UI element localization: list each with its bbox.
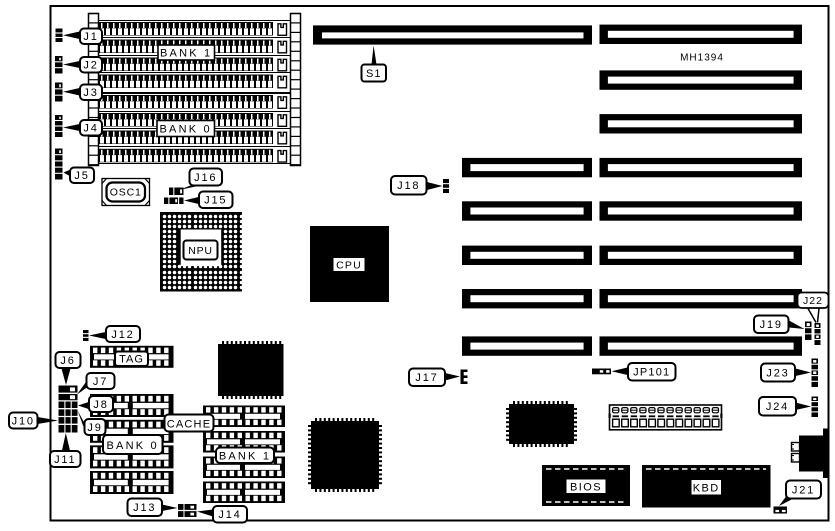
svg-text:J6: J6 [60,355,75,367]
svg-text:J10: J10 [12,415,35,427]
svg-text:J3: J3 [83,87,98,99]
svg-text:J23: J23 [766,367,789,379]
svg-text:MH1394: MH1394 [680,53,724,64]
svg-text:J16: J16 [194,172,217,184]
svg-text:TAG: TAG [119,354,144,366]
svg-text:BANK 1: BANK 1 [160,48,212,60]
svg-text:J13: J13 [133,502,156,514]
svg-text:J24: J24 [766,401,789,413]
svg-text:J5: J5 [74,170,89,182]
svg-text:JP101: JP101 [633,367,670,379]
svg-text:J8: J8 [93,399,108,411]
svg-text:CACHE: CACHE [167,419,212,431]
svg-text:OSC1: OSC1 [110,187,142,199]
svg-text:KBD: KBD [693,482,720,494]
svg-text:J14: J14 [218,509,241,521]
svg-text:J19: J19 [760,319,783,331]
svg-text:J18: J18 [397,180,420,192]
svg-text:J17: J17 [415,372,438,384]
svg-text:BANK 0: BANK 0 [107,440,159,452]
svg-text:J9: J9 [87,422,102,434]
svg-text:J22: J22 [803,295,823,307]
svg-text:BIOS: BIOS [570,482,602,494]
svg-text:CPU: CPU [336,259,362,271]
svg-text:J15: J15 [204,195,227,207]
svg-text:BANK 1: BANK 1 [219,451,271,463]
svg-text:J11: J11 [54,454,76,466]
svg-text:J7: J7 [93,376,108,388]
svg-text:J21: J21 [792,484,815,496]
svg-text:BANK 0: BANK 0 [160,124,212,136]
svg-text:J2: J2 [83,60,98,72]
svg-text:NPU: NPU [188,245,213,257]
svg-text:J12: J12 [111,329,134,341]
svg-text:J1: J1 [83,31,98,43]
svg-text:J4: J4 [83,123,98,135]
svg-text:S1: S1 [366,68,381,80]
